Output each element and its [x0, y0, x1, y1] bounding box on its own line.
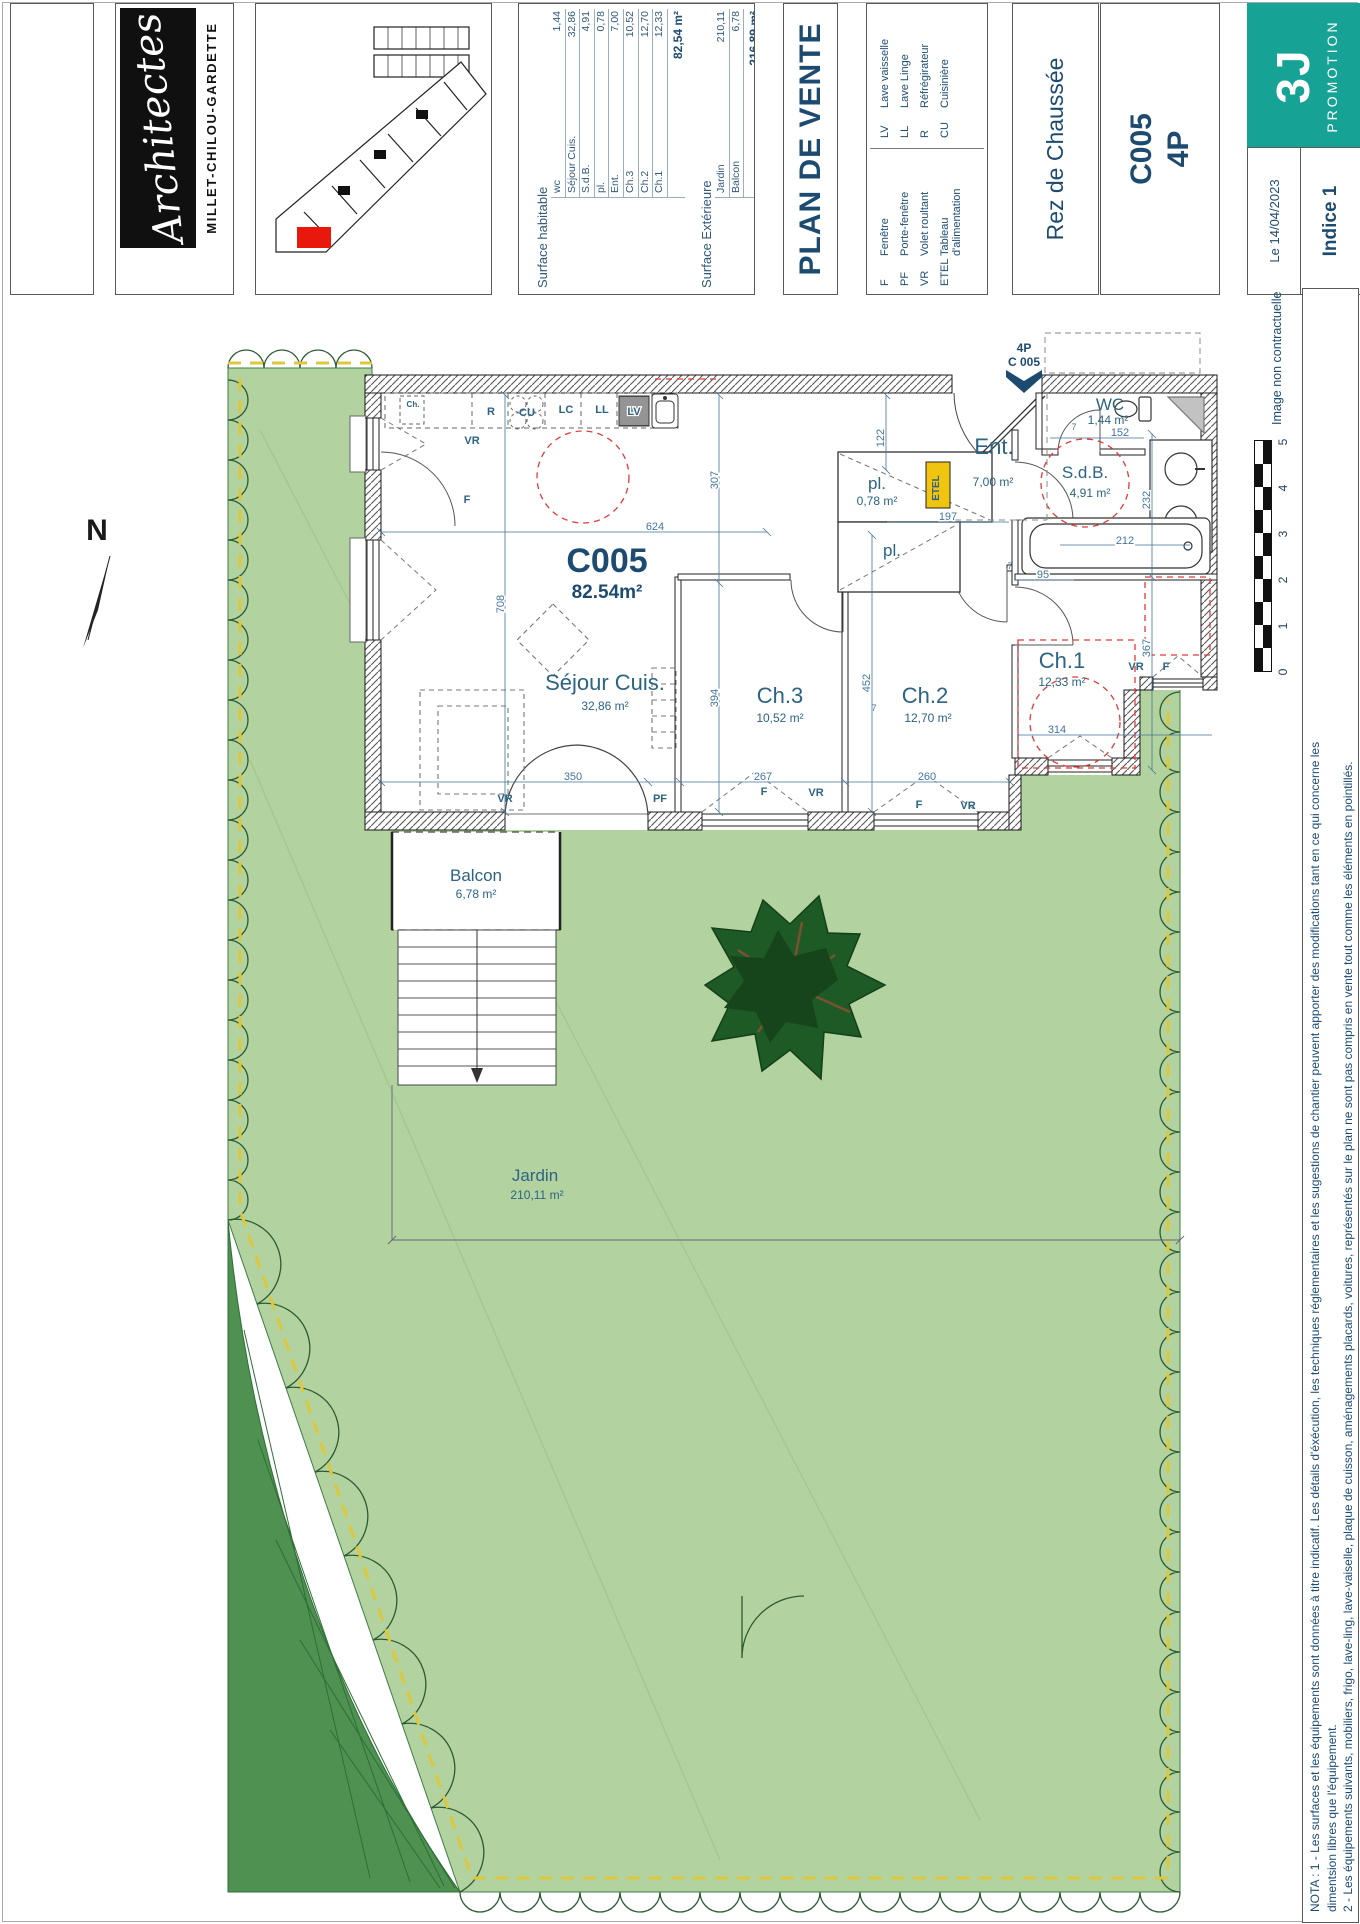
titlebox-siteplan — [255, 3, 492, 295]
room-sejour: Séjour Cuis. — [545, 670, 665, 695]
room-balcon-area: 6,78 m² — [456, 887, 497, 901]
legend-item: PFPorte-fenêtre — [899, 154, 911, 286]
svg-text:PF: PF — [653, 793, 667, 805]
garden-stairs — [398, 930, 556, 1085]
scale-tick: 3 — [1276, 524, 1290, 544]
svg-text:624: 624 — [646, 521, 664, 533]
table-row: Ch.310,52 — [624, 9, 639, 197]
room-pl2: pl. — [883, 541, 901, 560]
svg-text:VR: VR — [1128, 661, 1143, 673]
svg-text:152: 152 — [1111, 427, 1129, 439]
table-row: wc1,44 — [551, 9, 566, 197]
room-jardin-area: 210,11 m² — [510, 1188, 563, 1202]
titlebox-empty — [10, 3, 94, 295]
svg-text:F: F — [761, 786, 768, 798]
room-ch2-area: 12,70 m² — [904, 711, 951, 725]
room-ent-area: 7,00 m² — [973, 475, 1014, 489]
room-ch3: Ch.3 — [757, 683, 803, 708]
label-washer: LL — [595, 404, 609, 416]
svg-text:267: 267 — [754, 771, 772, 783]
room-jardin: Jardin — [512, 1166, 558, 1185]
label-fridge: R — [487, 406, 495, 418]
scale-bar-strip — [1254, 440, 1272, 672]
svg-text:C 005: C 005 — [1008, 355, 1040, 369]
svg-text:7: 7 — [871, 703, 876, 713]
svg-text:N: N — [86, 514, 108, 547]
titlebox-surface-table: Surface habitable wc1,44 Séjour Cuis.32,… — [518, 3, 755, 295]
table-row: Ch.112,33 — [653, 9, 668, 197]
plan-title: PLAN DE VENTE — [794, 22, 828, 275]
table-row: pl.0,78 — [595, 9, 610, 197]
svg-text:95: 95 — [1037, 569, 1049, 581]
label-etel: ETEL — [931, 475, 942, 501]
svg-text:260: 260 — [918, 771, 936, 783]
nota-line-3: 2 - Les équipements suivants, mobiliers,… — [1340, 288, 1357, 1912]
svg-text:452: 452 — [861, 674, 873, 692]
room-balcon: Balcon — [450, 866, 502, 885]
svg-text:F: F — [916, 799, 923, 811]
svg-text:232: 232 — [1141, 491, 1153, 509]
titlebox-legend: FFenêtre PFPorte-fenêtre VRVolet roultan… — [866, 3, 988, 295]
indice-label: Indice 1 — [1320, 186, 1342, 257]
svg-text:F: F — [1163, 661, 1170, 673]
table-row: Jardin210,11 — [715, 9, 730, 197]
architects-firm: MILLET-CHILOU-GARDETTE — [204, 8, 219, 248]
room-sdb: S.d.B. — [1062, 463, 1108, 482]
north-arrow-icon: N — [83, 514, 110, 648]
table-row: Ch.212,70 — [639, 9, 654, 197]
room-sdb-area: 4,91 m² — [1070, 486, 1111, 500]
table-row: Ent.7,00 — [609, 9, 624, 197]
room-pl1: pl. — [868, 474, 886, 493]
svg-text:350: 350 — [564, 771, 582, 783]
unit-label: C005 — [566, 542, 647, 580]
svg-text:314: 314 — [1048, 724, 1066, 736]
label-boiler: Ch. — [407, 400, 420, 409]
legend-openings: FFenêtre PFPorte-fenêtre VRVolet roultan… — [879, 154, 971, 286]
legend-item: VRVolet roultant — [919, 154, 931, 286]
svg-text:197: 197 — [939, 511, 957, 523]
surface-exterieure-header: Surface Extérieure — [699, 180, 714, 288]
kitchen-sink — [652, 394, 678, 428]
titlebox-architects: Architectes MILLET-CHILOU-GARDETTE — [115, 3, 234, 295]
site-plan-unit-highlight — [297, 227, 331, 248]
titlebox-promoter: 3J PROMOTION — [1247, 3, 1360, 149]
titlebox-indice: Indice 1 — [1300, 147, 1360, 295]
legend-item: CUCuisinière — [939, 8, 951, 138]
date-label: Le 14/04/2023 — [1267, 179, 1282, 262]
label-dishwasher: LV — [627, 406, 641, 418]
disclaimer-box: Image non contractuelle — [1268, 288, 1296, 425]
table-row: Balcon6,78 — [730, 9, 745, 197]
legend-divider — [870, 148, 984, 149]
nota-line-2: dimentsion libres que l'équipement. — [1324, 288, 1341, 1912]
level-label: Rez de Chaussée — [1042, 58, 1069, 241]
promoter-logo: 3J — [1270, 4, 1316, 148]
surface-exterieure-rows: Jardin210,11 Balcon6,78 216,89 m² — [715, 9, 755, 198]
svg-text:VR: VR — [464, 435, 479, 447]
svg-text:F: F — [464, 494, 471, 506]
architects-script: Architectes — [123, 11, 193, 246]
room-ch3-area: 10,52 m² — [756, 711, 803, 725]
disclaimer-text: Image non contractuelle — [1270, 292, 1284, 425]
room-ch1: Ch.1 — [1039, 648, 1085, 673]
unit-type: 4P — [1160, 113, 1198, 185]
titlebox-unit: C005 4P — [1100, 3, 1220, 295]
svg-text:307: 307 — [709, 471, 721, 489]
surface-exterieure-total: 216,89 m² — [744, 9, 755, 197]
titlebox-date: Le 14/04/2023 — [1247, 147, 1302, 295]
plan-sheet: C005 82.54m² Séjour Cuis. 32,86 m² Ch.3 … — [0, 0, 1360, 1924]
titlebox-level: Rez de Chaussée — [1012, 3, 1099, 295]
nota-box: NOTA : 1 - Les surfaces et les équipemen… — [1302, 288, 1359, 1923]
svg-text:7: 7 — [1071, 422, 1076, 432]
table-row: Séjour Cuis.32,86 — [566, 9, 581, 197]
nota-line-1: NOTA : 1 - Les surfaces et les équipemen… — [1307, 288, 1324, 1912]
scale-tick: 1 — [1276, 616, 1290, 636]
room-ent: Ent. — [974, 434, 1013, 459]
scale-tick: 2 — [1276, 570, 1290, 590]
scale-tick: 0 — [1276, 662, 1290, 676]
svg-text:VR: VR — [960, 800, 975, 812]
architects-logo: Architectes — [120, 8, 196, 248]
legend-item: FFenêtre — [879, 154, 891, 286]
scale-tick: 4 — [1276, 478, 1290, 498]
svg-text:394: 394 — [709, 689, 721, 707]
unit-code: C005 — [1123, 113, 1161, 185]
room-wc-area: 1,44 m² — [1088, 413, 1129, 427]
room-sejour-area: 32,86 m² — [581, 699, 628, 713]
site-plan-thumbnail — [256, 4, 489, 292]
titlebox-plan-title: PLAN DE VENTE — [783, 3, 838, 295]
scale-tick: 5 — [1276, 432, 1290, 452]
svg-text:367: 367 — [1141, 639, 1153, 657]
label-cooker: CU — [519, 407, 535, 419]
surface-habitable-rows: wc1,44 Séjour Cuis.32,86 S.d.B.4,91 pl.0… — [551, 9, 685, 198]
room-wc: WC — [1096, 395, 1124, 414]
legend-item: LLLave Linge — [899, 8, 911, 138]
svg-text:VR: VR — [808, 787, 823, 799]
surface-habitable-total: 82,54 m² — [668, 9, 685, 197]
room-pl1-area: 0,78 m² — [857, 494, 898, 508]
svg-text:4P: 4P — [1017, 341, 1032, 355]
svg-text:708: 708 — [495, 595, 507, 613]
table-row: S.d.B.4,91 — [580, 9, 595, 197]
legend-item: LVLave vaisselle — [879, 8, 891, 138]
room-ch1-area: 12,33 m² — [1038, 675, 1085, 689]
svg-text:212: 212 — [1116, 535, 1134, 547]
apartment-footprint — [365, 375, 1217, 830]
scale-bar: 0 1 2 3 4 5 — [1246, 428, 1300, 676]
svg-text:VR: VR — [497, 793, 512, 805]
svg-text:7: 7 — [1007, 561, 1012, 571]
surface-habitable-header: Surface habitable — [535, 187, 550, 288]
room-ch2: Ch.2 — [902, 683, 948, 708]
legend-appliances: LVLave vaisselle LLLave Linge RRéfrégira… — [879, 8, 959, 138]
legend-item: RRéfrégirateur — [919, 8, 931, 138]
svg-text:122: 122 — [875, 429, 887, 447]
label-lc: LC — [559, 404, 574, 416]
unit-area: 82.54m² — [572, 582, 643, 603]
promoter-name: PROMOTION — [1324, 4, 1340, 148]
legend-item: ETELTableau d'alimentation — [939, 154, 963, 286]
